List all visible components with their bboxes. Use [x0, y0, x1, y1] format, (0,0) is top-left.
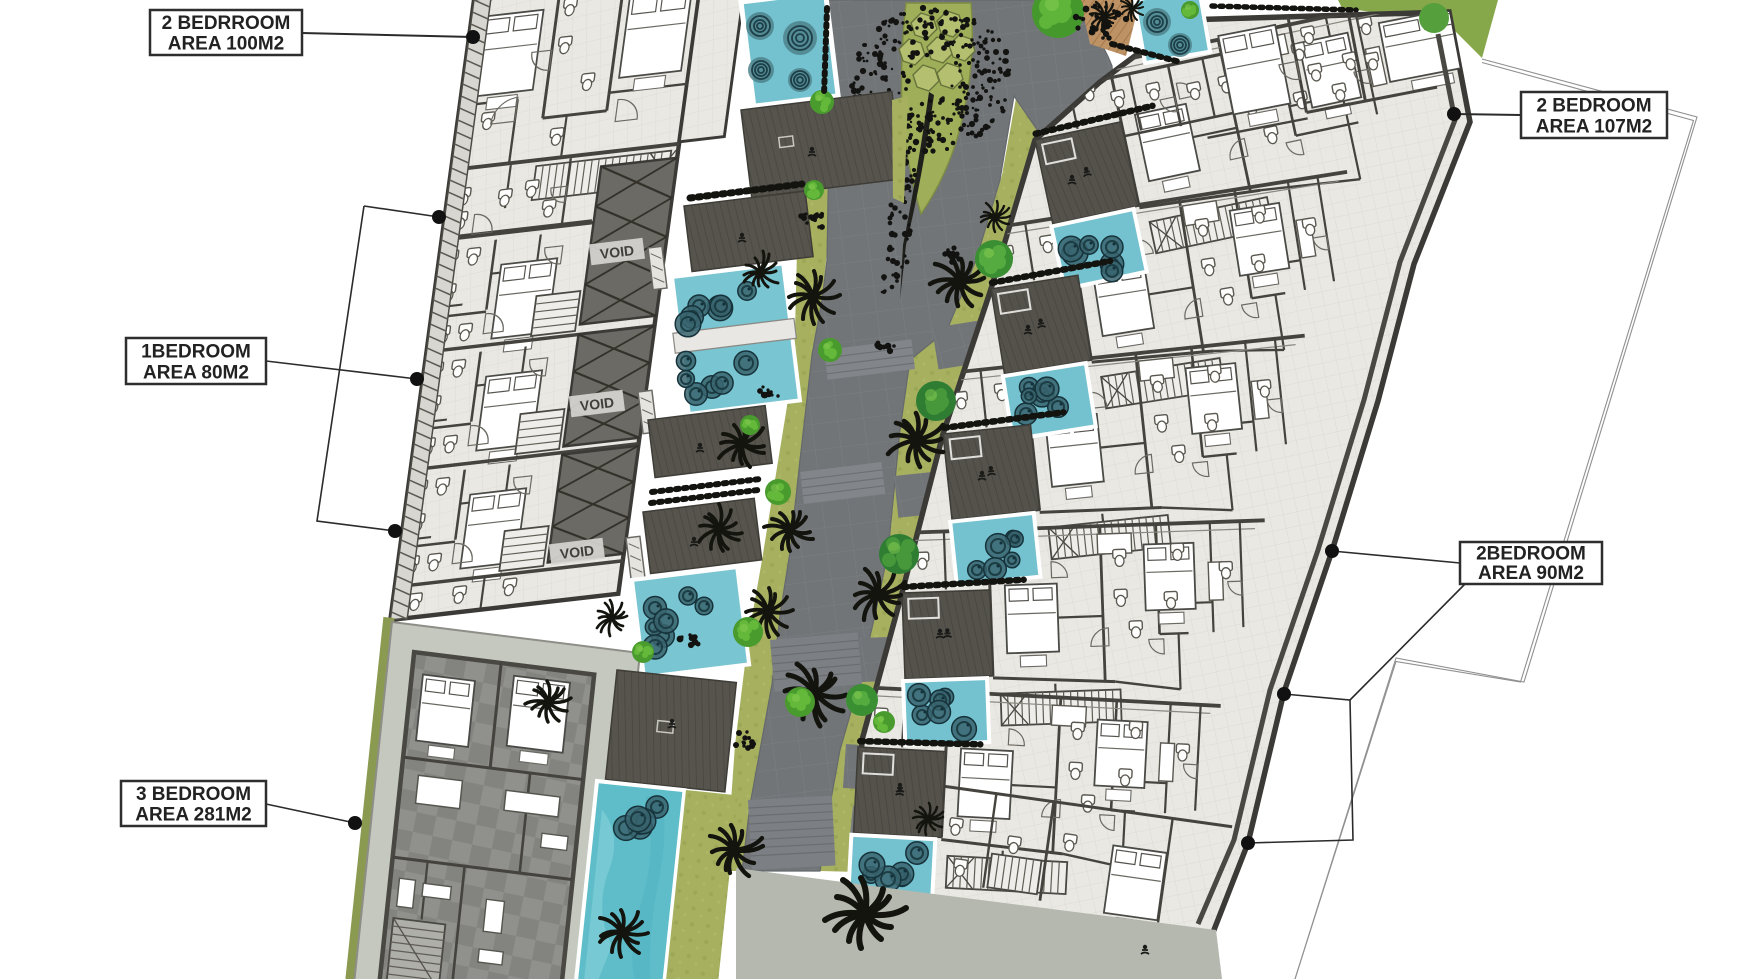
- svg-text:AREA 100M2: AREA 100M2: [168, 34, 285, 55]
- svg-text:2BEDROOM: 2BEDROOM: [1476, 544, 1586, 565]
- svg-text:AREA 107M2: AREA 107M2: [1536, 116, 1653, 137]
- svg-text:AREA 90M2: AREA 90M2: [1478, 563, 1584, 584]
- svg-text:2 BEDROOM: 2 BEDROOM: [1536, 95, 1651, 116]
- svg-text:2 BEDRROOM: 2 BEDRROOM: [162, 13, 291, 34]
- svg-text:AREA 281M2: AREA 281M2: [135, 805, 252, 826]
- svg-text:AREA 80M2: AREA 80M2: [143, 362, 249, 383]
- svg-text:1BEDROOM: 1BEDROOM: [141, 341, 251, 362]
- svg-text:3 BEDROOM: 3 BEDROOM: [136, 784, 251, 805]
